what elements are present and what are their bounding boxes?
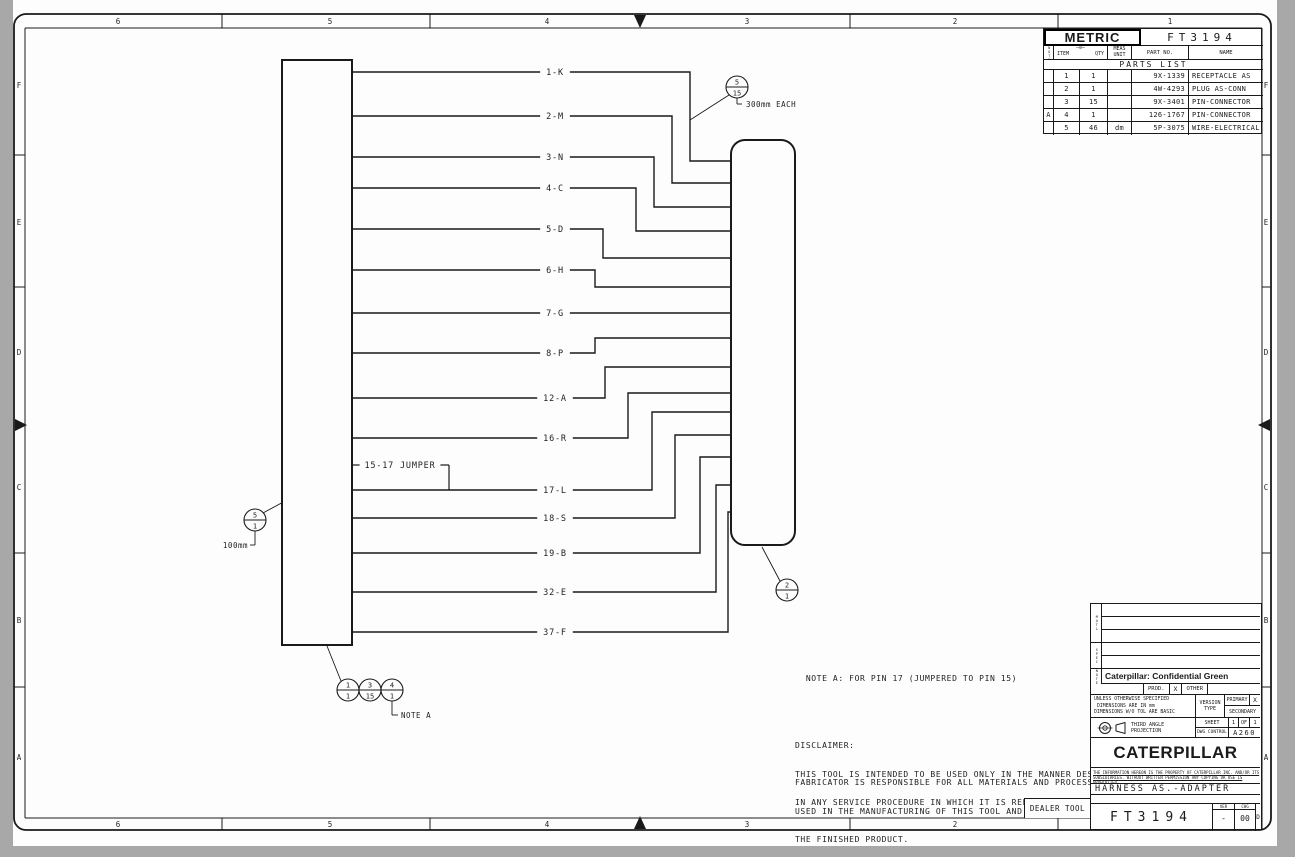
parts-cell-qty: 1 [1080,109,1108,122]
projection-cell: THIRD ANGLE PROJECTION [1091,718,1196,738]
parts-cell-unit [1108,83,1132,96]
balloon-qty: 15 [733,90,741,98]
balloon-item-number: 2 [785,582,789,590]
dealer-tool-box: DEALER TOOL [1024,798,1090,818]
wire-label-16-R: 16-R [543,434,567,444]
third-angle-symbol [1097,721,1127,735]
wire-label-37-F: 37-F [543,628,567,638]
parts-cell-part: 9X-3401 [1132,96,1189,109]
zone-label-right: E [1264,218,1269,227]
balloon-qty: 1 [390,693,394,701]
balloon-tail-text: NOTE A [401,711,431,720]
zone-label-top: 2 [953,17,958,26]
parts-cell-name: WIRE-ELECTRICAL [1189,122,1263,135]
note-cell: NOTE [1091,669,1102,684]
metric-box: METRIC [1044,29,1141,46]
parts-cell-qty: 15 [1080,96,1108,109]
part-no-header: PART NO. [1132,46,1189,59]
parts-cell-item: 1 [1054,70,1080,83]
drawing-title: HARNESS AS.-ADAPTER [1091,784,1260,795]
balloon-qty: 15 [366,693,374,701]
zone-label-left: E [17,218,22,227]
parts-cell-name: PIN-CONNECTOR [1189,96,1263,109]
wire-label-5-D: 5-D [546,225,564,235]
note-a-text: NOTE A: FOR PIN 17 (JUMPERED TO PIN 15) [795,664,1017,683]
primary-cell: PRIMARY [1225,695,1249,706]
zone-label-top: 4 [545,17,550,26]
parts-list-title: PARTS LIST [1044,59,1263,70]
center-marker-right [1258,419,1270,431]
plug-outline [731,140,795,545]
sheet-label-cell: SHEET [1196,718,1228,728]
zone-label-left: A [17,753,22,762]
parts-drawing-number: FT3194 [1141,29,1263,46]
engineering-drawing-sheet: { "drawing_number": "FT3194", "sheet": {… [0,0,1295,857]
parts-cell-part: 126-1767 [1132,109,1189,122]
parts-cell-part: 9X-1339 [1132,70,1189,83]
parts-cell-unit: dm [1108,122,1132,135]
parts-cell-qty: 46 [1080,122,1108,135]
zone-label-bottom: 5 [328,820,333,829]
parts-list-table: METRIC FT3194 NOTE —⊖— ITEM QTY MEAS UNI… [1043,28,1262,134]
wire-label-18-S: 18-S [543,514,567,524]
balloon-leader [690,95,729,120]
jumper-label: 15-17 JUMPER [364,461,435,471]
prod-other-row: PROD. X OTHER [1091,684,1260,695]
parts-cell-note [1044,122,1054,135]
wire-route [570,229,731,258]
of-no-cell: 1 [1249,718,1260,728]
item-qty-header: —⊖— ITEM QTY [1054,46,1108,59]
wire-label-2-M: 2-M [546,112,564,122]
wire-route [573,512,731,632]
parts-cell-item: 4 [1054,109,1080,122]
matl-cell: MATL [1091,604,1102,643]
balloon-tail-text: 100mm [223,541,248,550]
wire-route [570,270,731,287]
wire-route [570,157,731,207]
parts-cell-item: 2 [1054,83,1080,96]
parts-cell-part: 5P-3075 [1132,122,1189,135]
wire-label-1-K: 1-K [546,68,564,78]
wire-label-12-A: 12-A [543,394,567,404]
wire-label-3-N: 3-N [546,153,564,163]
wire-label-7-G: 7-G [546,309,564,319]
zone-label-right: F [1264,81,1269,90]
balloon-qty: 1 [346,693,350,701]
parts-cell-unit [1108,109,1132,122]
wire-label-6-H: 6-H [546,266,564,276]
wire-label-17-L: 17-L [543,486,567,496]
zone-label-left: F [17,81,22,90]
zone-label-top: 5 [328,17,333,26]
of-label-cell: OF [1238,718,1249,728]
caterpillar-logo: CATERPILLAR [1091,738,1260,768]
metric-label: METRIC [1065,30,1121,45]
confidentiality-row: Caterpillar: Confidential Green [1102,669,1260,684]
balloon-qty: 1 [785,593,789,601]
balloon-item-number: 1 [346,682,350,690]
secondary-cell: SECONDARY [1225,706,1260,718]
zone-label-top: 1 [1168,17,1173,26]
parts-cell-note: A [1044,109,1054,122]
parts-cell-name: PIN-CONNECTOR [1189,109,1263,122]
parts-cell-name: PLUG AS-CONN [1189,83,1263,96]
parts-cell-part: 4W-4293 [1132,83,1189,96]
size-cell: D [1256,804,1260,831]
parts-cell-unit [1108,96,1132,109]
wire-label-19-B: 19-B [543,549,567,559]
zone-label-top: 3 [745,17,750,26]
frame-outer-border [14,14,1271,830]
meas-unit-header: MEAS UNIT [1108,46,1132,59]
parts-cell-qty: 1 [1080,70,1108,83]
tolerance-note: UNLESS OTHERWISE SPECIFIED DIMENSIONS AR… [1091,695,1196,718]
chg-cell: CHG 00 [1235,804,1256,831]
disclaimer-title: DISCLAIMER: [795,741,1125,751]
wire-route [570,338,731,353]
title-drawing-number: FT3194 [1091,804,1213,831]
wire-label-8-P: 8-P [546,349,564,359]
balloon-item-number: 5 [253,512,257,520]
balloon-tail-text: 300mm EACH [746,100,796,109]
wire-label-4-C: 4-C [546,184,564,194]
zone-label-left: C [17,483,22,492]
wire-route [573,485,731,592]
center-marker-top [634,15,646,28]
balloon-leader [327,646,341,681]
parts-cell-unit [1108,70,1132,83]
zone-label-right: C [1264,483,1269,492]
version-type-cell: VERSION TYPE [1196,695,1225,718]
balloon-item-number: 3 [368,682,372,690]
balloon-qty: 1 [253,523,257,531]
dwg-control-label-cell: DWG CONTROL [1196,728,1228,738]
parts-cell-item: 3 [1054,96,1080,109]
zone-label-bottom: 4 [545,820,550,829]
sheet-no-cell: 1 [1228,718,1238,728]
balloon-item-number: 4 [390,682,394,690]
primary-x-cell: X [1249,695,1260,706]
dwg-control-value-cell: A260 [1228,728,1260,738]
zone-label-bottom: 3 [745,820,750,829]
wire-route [573,412,731,490]
zone-label-left: D [17,348,22,357]
balloon-leader [762,547,780,581]
name-header: NAME [1189,46,1263,59]
zone-label-right: B [1264,616,1269,625]
note-col-header: NOTE [1044,46,1054,59]
ver-cell: VER - [1213,804,1235,831]
parts-cell-note [1044,83,1054,96]
parts-cell-note [1044,70,1054,83]
wire-route [570,116,731,183]
zone-label-bottom: 6 [116,820,121,829]
wire-route [570,188,731,231]
zone-label-left: B [17,616,22,625]
title-block: MATL SPEC NOTE Caterpillar: Confidential… [1090,603,1262,830]
receptacle-outline [282,60,352,645]
balloon-item-number: 5 [735,79,739,87]
parts-cell-qty: 1 [1080,83,1108,96]
wire-label-32-E: 32-E [543,588,567,598]
parts-cell-item: 5 [1054,122,1080,135]
parts-cell-note [1044,96,1054,109]
legal-text: THE INFORMATION HEREON IS THE PROPERTY O… [1091,768,1260,784]
zone-label-top: 6 [116,17,121,26]
zone-label-right: D [1264,348,1269,357]
zone-label-right: A [1264,753,1269,762]
spec-cell: SPEC [1091,643,1102,669]
parts-cell-name: RECEPTACLE AS [1189,70,1263,83]
